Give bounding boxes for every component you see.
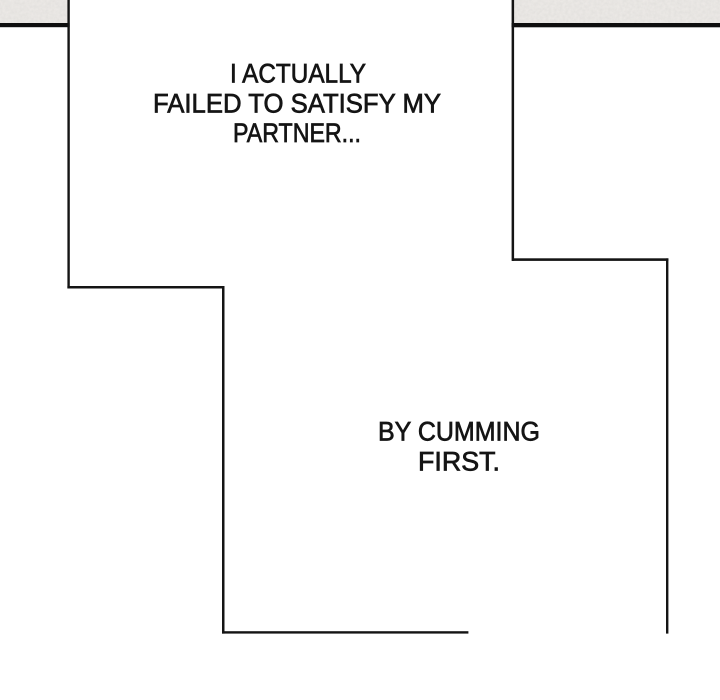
svg-text:FAILED TO SATISFY MY: FAILED TO SATISFY MY [153, 89, 441, 119]
svg-text:I ACTUALLY: I ACTUALLY [230, 59, 366, 89]
svg-text:PARTNER...: PARTNER... [233, 118, 361, 148]
svg-text:FIRST.: FIRST. [418, 447, 500, 477]
svg-text:BY CUMMING: BY CUMMING [378, 417, 540, 447]
